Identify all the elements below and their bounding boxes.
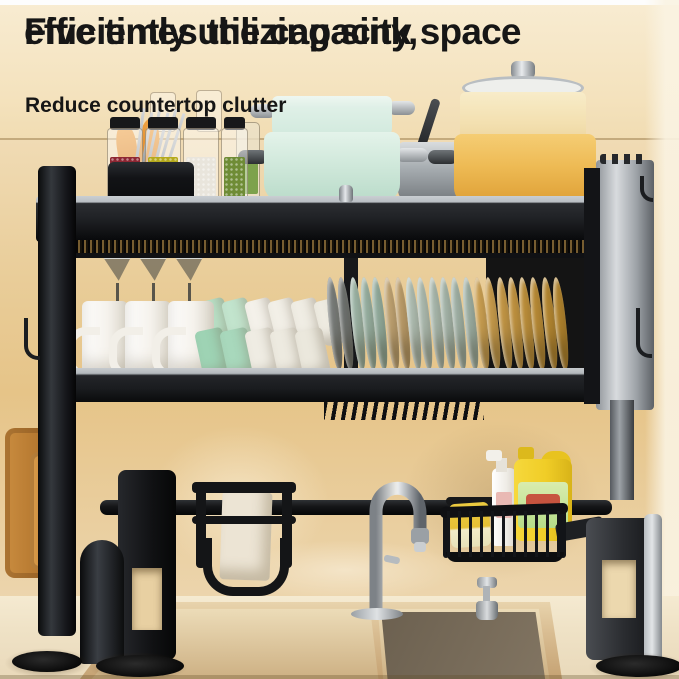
rack-foot-disc xyxy=(12,651,82,672)
spray-bottle-nozzle xyxy=(486,450,502,461)
right-leg-front-rail xyxy=(644,514,662,664)
basket-wire xyxy=(491,511,494,557)
basket-wire xyxy=(469,511,472,557)
rack-left-post xyxy=(38,166,76,636)
pot-handle xyxy=(388,101,415,115)
rack-foot-disc xyxy=(596,655,679,677)
side-hook-icon xyxy=(24,318,40,360)
rack-right-inner-panel xyxy=(584,168,600,404)
rack-right-lower-post xyxy=(610,400,634,500)
headline-line2: efficiently utilizing sink space xyxy=(24,12,521,52)
faucet-flange xyxy=(351,608,403,620)
top-shelf-rail xyxy=(36,196,654,242)
pot-handle xyxy=(396,148,428,162)
knife-holder-top-bar xyxy=(192,482,296,493)
basket-wire xyxy=(524,511,527,557)
basket-wire xyxy=(502,511,505,557)
basket-wire xyxy=(535,511,538,557)
basket-wire xyxy=(458,511,461,557)
mint-pot-large xyxy=(264,132,400,202)
basket-wire xyxy=(447,511,450,557)
plate-rack-prongs xyxy=(324,400,484,420)
rack-foot-disc xyxy=(96,655,184,677)
shelf-knob xyxy=(339,185,353,202)
left-leg-frame xyxy=(118,470,176,660)
top-white-strip xyxy=(0,0,679,5)
basket-wire xyxy=(513,511,516,557)
basket-wire xyxy=(557,511,560,557)
yellow-pot xyxy=(454,134,596,204)
side-hook-icon xyxy=(636,308,652,358)
basket-wire xyxy=(480,511,483,557)
left-leg-cutout xyxy=(132,568,162,630)
left-leg-post xyxy=(80,540,124,664)
subheadline: Reduce countertop clutter xyxy=(25,94,286,118)
soap-dispenser-body xyxy=(476,601,498,620)
basket-wire xyxy=(546,511,549,557)
jar-green-beans xyxy=(221,128,248,206)
knife-holder-rung xyxy=(192,516,296,524)
right-leg-cutout xyxy=(602,560,636,618)
knife-holder-u-frame xyxy=(203,538,289,596)
counter-front-edge xyxy=(0,675,679,679)
middle-shelf-rail xyxy=(54,368,650,402)
under-shelf-rail xyxy=(50,253,610,258)
product-image: Five times the capacity, efficiently uti… xyxy=(0,0,679,679)
frame-screws xyxy=(600,154,644,164)
